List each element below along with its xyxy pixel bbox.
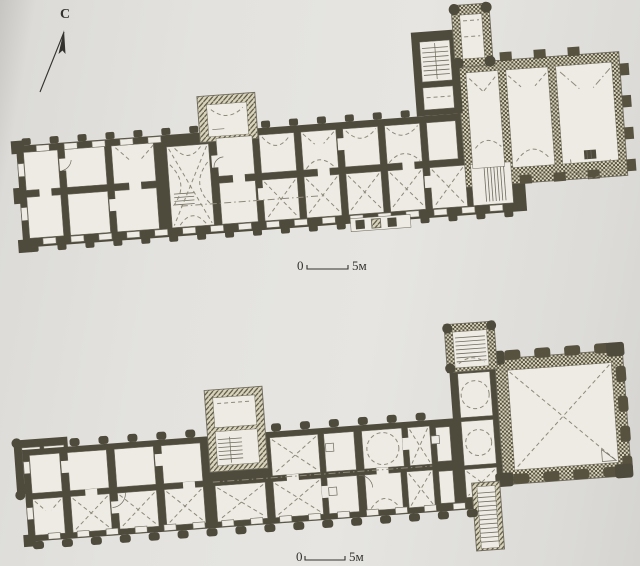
upper-central-tower [197, 92, 258, 142]
scale-length-label: 5м [349, 549, 364, 564]
scale-bar-line [307, 265, 348, 269]
scanned-book-page: С [0, 0, 640, 566]
north-label: С [60, 7, 70, 22]
scale-bar-upper: 0 5м [297, 258, 367, 273]
lower-central-annex [204, 386, 268, 472]
scale-bar-line [305, 556, 345, 560]
scale-length-label: 5м [352, 258, 367, 273]
upper-corner-turret [448, 1, 496, 69]
lower-great-hall [486, 342, 634, 488]
scale-bar-lower: 0 5м [296, 549, 364, 564]
scale-zero-label: 0 [297, 258, 304, 273]
floor-plans-figure: С [0, 0, 640, 566]
lower-stair-tower [442, 320, 500, 374]
scale-zero-label: 0 [296, 549, 303, 564]
north-arrow-icon [40, 32, 64, 92]
north-arrow: С [40, 7, 70, 92]
lower-floor-plan [5, 311, 638, 566]
upper-floor-plan [2, 0, 639, 256]
